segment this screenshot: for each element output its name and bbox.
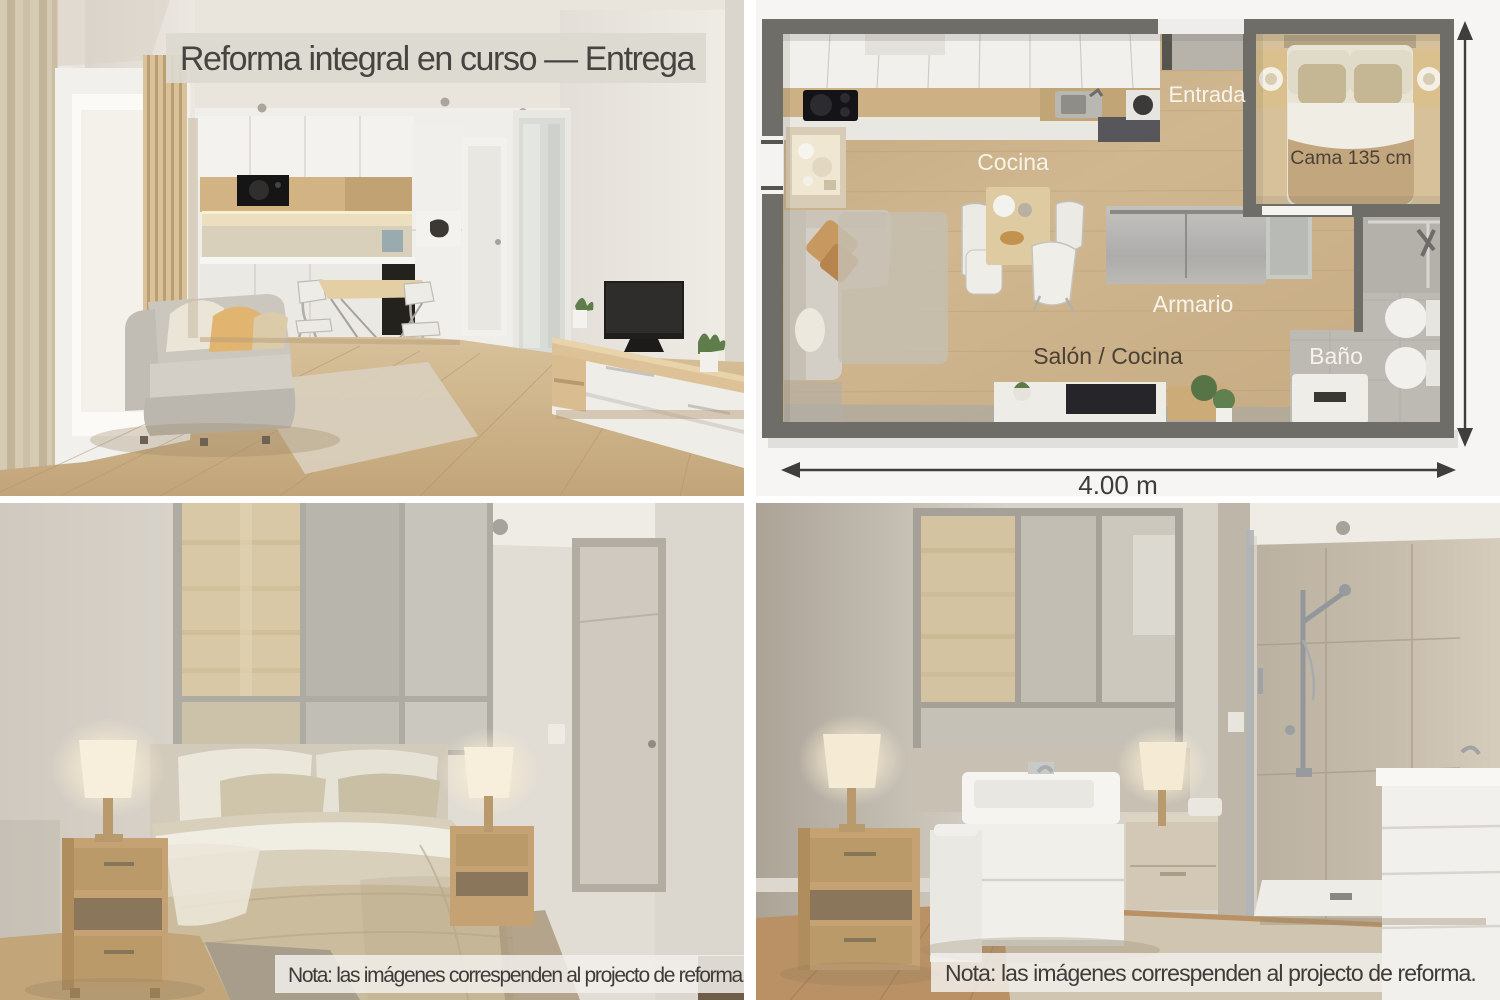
svg-text:Nota: las imágenes correspende: Nota: las imágenes correspenden al proje… — [945, 960, 1476, 986]
svg-text:Reforma integral en curso — En: Reforma integral en curso — Entrega — [180, 40, 696, 78]
svg-text:Baño: Baño — [1309, 343, 1363, 369]
svg-text:Nota: las imágenes correspende: Nota: las imágenes correspenden al proje… — [288, 964, 746, 987]
svg-text:Cocina: Cocina — [977, 149, 1049, 175]
svg-text:Entrada: Entrada — [1168, 82, 1246, 107]
svg-text:Armario: Armario — [1153, 291, 1234, 317]
svg-text:Cama 135 cm: Cama 135 cm — [1290, 147, 1411, 169]
svg-text:Salón / Cocina: Salón / Cocina — [1033, 343, 1183, 369]
svg-text:4.00 m: 4.00 m — [1078, 470, 1158, 500]
